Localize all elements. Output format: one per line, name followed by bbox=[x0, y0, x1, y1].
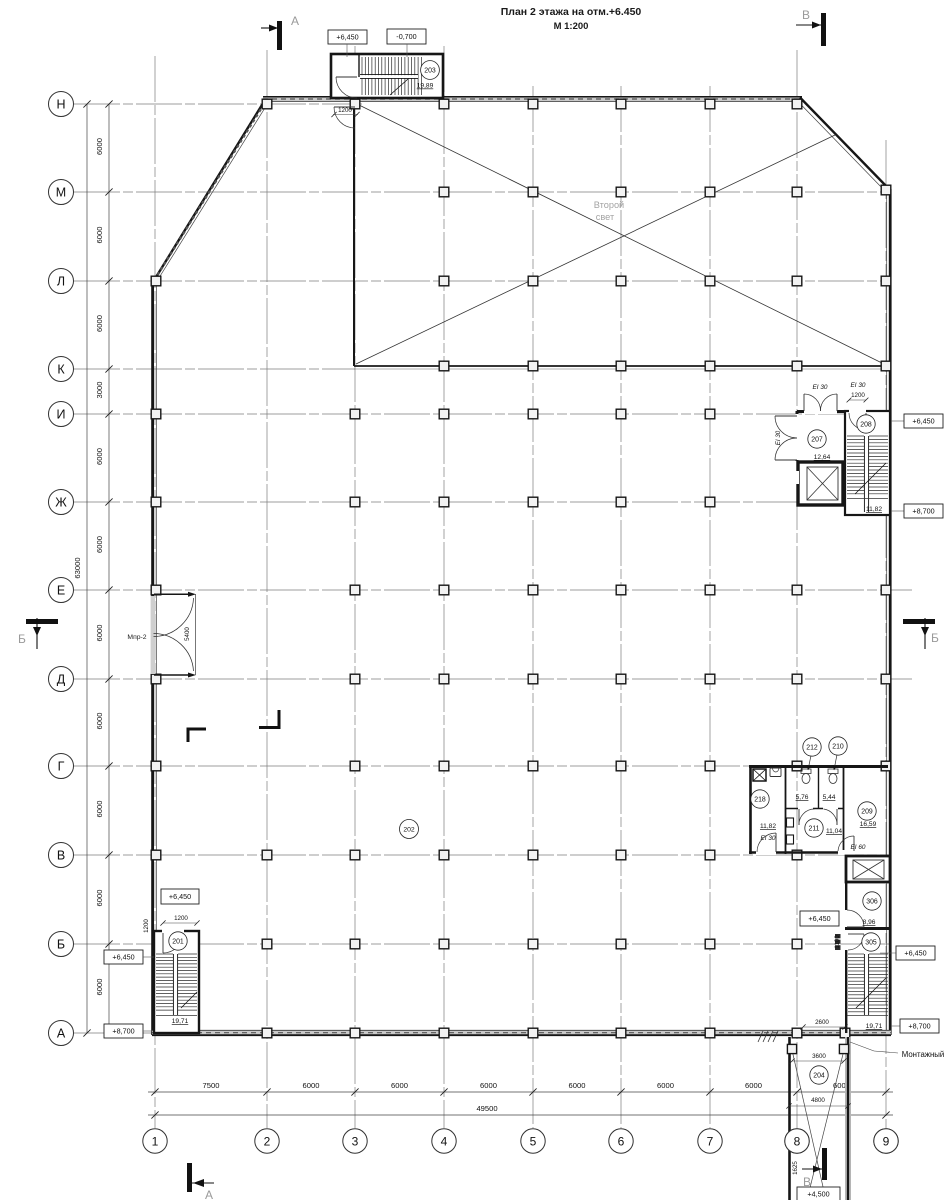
svg-text:И: И bbox=[57, 407, 66, 421]
svg-text:211: 211 bbox=[809, 825, 820, 832]
svg-text:План 2 этажа на отм.+6.450: План 2 этажа на отм.+6.450 bbox=[501, 6, 642, 18]
svg-text:1100: 1100 bbox=[834, 935, 841, 949]
svg-text:1200: 1200 bbox=[174, 915, 188, 922]
svg-text:+4,500: +4,500 bbox=[807, 1190, 829, 1199]
svg-text:К: К bbox=[57, 362, 65, 376]
svg-text:Монтажный: Монтажный bbox=[902, 1050, 945, 1059]
svg-text:1200: 1200 bbox=[338, 107, 352, 114]
svg-text:А: А bbox=[57, 1026, 66, 1040]
svg-text:В: В bbox=[802, 8, 810, 22]
svg-text:19,71: 19,71 bbox=[866, 1023, 883, 1030]
svg-text:210: 210 bbox=[832, 743, 844, 750]
svg-text:9: 9 bbox=[883, 1134, 890, 1148]
svg-text:6000: 6000 bbox=[745, 1081, 762, 1090]
svg-text:В: В bbox=[803, 1175, 811, 1189]
svg-text:+6,450: +6,450 bbox=[912, 417, 934, 426]
svg-text:+8,700: +8,700 bbox=[912, 507, 934, 516]
svg-text:7500: 7500 bbox=[203, 1081, 220, 1090]
svg-text:5400: 5400 bbox=[184, 627, 191, 641]
svg-text:свет: свет bbox=[596, 212, 615, 222]
svg-text:-0,700: -0,700 bbox=[396, 32, 416, 41]
svg-text:6000: 6000 bbox=[657, 1081, 674, 1090]
svg-text:8,96: 8,96 bbox=[863, 919, 876, 926]
svg-text:Б: Б bbox=[57, 937, 65, 951]
svg-text:201: 201 bbox=[172, 938, 184, 945]
svg-text:209: 209 bbox=[861, 808, 873, 815]
svg-text:Б: Б bbox=[18, 632, 26, 646]
svg-text:1200: 1200 bbox=[851, 392, 865, 399]
svg-text:3: 3 bbox=[352, 1134, 359, 1148]
svg-text:Ж: Ж bbox=[55, 495, 67, 509]
svg-text:6000: 6000 bbox=[480, 1081, 497, 1090]
svg-text:Второй: Второй bbox=[594, 200, 624, 210]
svg-text:1: 1 bbox=[152, 1134, 159, 1148]
svg-text:М 1:200: М 1:200 bbox=[554, 21, 589, 32]
svg-text:6000: 6000 bbox=[95, 536, 104, 553]
svg-text:6000: 6000 bbox=[95, 801, 104, 818]
svg-text:+8,700: +8,700 bbox=[112, 1027, 134, 1036]
svg-text:+6,450: +6,450 bbox=[904, 949, 926, 958]
svg-text:203: 203 bbox=[424, 67, 436, 74]
svg-text:11,82: 11,82 bbox=[866, 506, 882, 513]
svg-text:19,71: 19,71 bbox=[172, 1018, 189, 1025]
svg-text:6000: 6000 bbox=[95, 138, 104, 155]
svg-text:63000: 63000 bbox=[73, 557, 82, 578]
svg-text:8: 8 bbox=[794, 1134, 801, 1148]
svg-text:5,44: 5,44 bbox=[823, 794, 836, 801]
svg-text:А: А bbox=[291, 14, 299, 28]
svg-text:5,76: 5,76 bbox=[796, 794, 809, 801]
svg-text:208: 208 bbox=[860, 421, 872, 428]
svg-text:2: 2 bbox=[264, 1134, 271, 1148]
svg-text:6000: 6000 bbox=[303, 1081, 320, 1090]
svg-text:5: 5 bbox=[530, 1134, 537, 1148]
svg-text:4: 4 bbox=[441, 1134, 448, 1148]
svg-text:6000: 6000 bbox=[569, 1081, 586, 1090]
svg-text:6000: 6000 bbox=[95, 713, 104, 730]
svg-text:+6,450: +6,450 bbox=[112, 953, 134, 962]
svg-text:218: 218 bbox=[754, 796, 766, 803]
svg-text:204: 204 bbox=[813, 1072, 825, 1079]
svg-text:А: А bbox=[205, 1188, 213, 1200]
svg-text:+6,450: +6,450 bbox=[808, 914, 830, 923]
svg-text:6000: 6000 bbox=[95, 890, 104, 907]
svg-text:16,59: 16,59 bbox=[860, 821, 877, 828]
svg-text:207: 207 bbox=[811, 436, 823, 443]
svg-text:Н: Н bbox=[56, 97, 65, 111]
svg-text:6000: 6000 bbox=[391, 1081, 408, 1090]
svg-text:6000: 6000 bbox=[95, 315, 104, 332]
svg-text:19,89: 19,89 bbox=[417, 83, 434, 90]
svg-text:3600: 3600 bbox=[812, 1053, 826, 1060]
svg-text:М: М bbox=[56, 185, 66, 199]
svg-text:Е: Е bbox=[57, 583, 65, 597]
svg-text:12,64: 12,64 bbox=[814, 454, 831, 461]
svg-text:305: 305 bbox=[865, 939, 877, 946]
svg-text:EI 30: EI 30 bbox=[851, 382, 866, 389]
svg-text:Л: Л bbox=[57, 274, 65, 288]
svg-text:4800: 4800 bbox=[811, 1097, 825, 1104]
svg-text:EI 60: EI 60 bbox=[851, 844, 866, 851]
svg-text:49500: 49500 bbox=[476, 1104, 497, 1113]
svg-text:Мпр-2: Мпр-2 bbox=[127, 634, 146, 641]
svg-text:212: 212 bbox=[806, 744, 818, 751]
svg-text:11,82: 11,82 bbox=[760, 823, 776, 830]
svg-text:2600: 2600 bbox=[815, 1019, 829, 1026]
svg-text:+6,450: +6,450 bbox=[169, 892, 191, 901]
svg-text:6000: 6000 bbox=[95, 227, 104, 244]
svg-text:Б: Б bbox=[931, 631, 939, 645]
svg-text:1625: 1625 bbox=[792, 1161, 799, 1175]
svg-text:202: 202 bbox=[403, 826, 415, 833]
svg-text:11,04: 11,04 bbox=[826, 828, 842, 835]
svg-text:EI 30: EI 30 bbox=[813, 384, 828, 391]
svg-text:7: 7 bbox=[707, 1134, 714, 1148]
svg-text:EI 30: EI 30 bbox=[775, 430, 782, 445]
svg-text:6000: 6000 bbox=[95, 625, 104, 642]
svg-text:Г: Г bbox=[58, 759, 65, 773]
svg-text:+6,450: +6,450 bbox=[336, 33, 358, 42]
svg-text:+8,700: +8,700 bbox=[908, 1022, 930, 1031]
svg-text:306: 306 bbox=[866, 898, 878, 905]
svg-text:6000: 6000 bbox=[95, 448, 104, 465]
svg-text:Д: Д bbox=[57, 672, 66, 686]
svg-text:3000: 3000 bbox=[95, 382, 104, 399]
svg-text:6: 6 bbox=[618, 1134, 625, 1148]
svg-text:1200: 1200 bbox=[143, 919, 150, 933]
svg-text:В: В bbox=[57, 848, 65, 862]
svg-text:6000: 6000 bbox=[95, 979, 104, 996]
